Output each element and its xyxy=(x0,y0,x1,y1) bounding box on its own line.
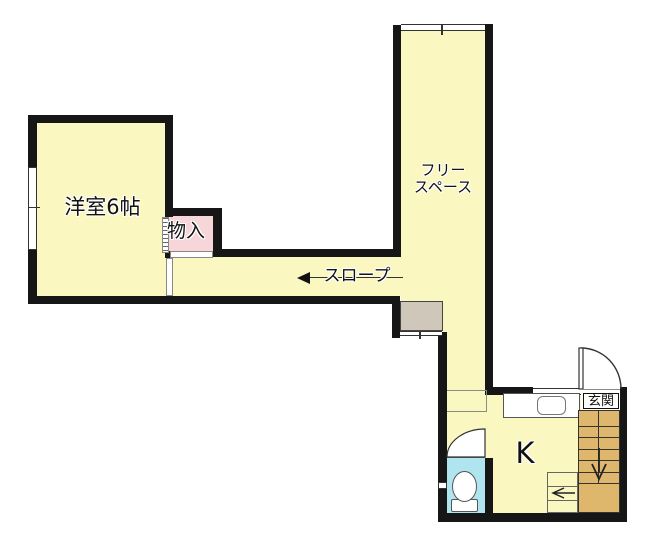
free-space-top-window xyxy=(401,24,485,31)
slope-left-arrow-icon xyxy=(294,269,312,287)
stairs-tread-1 xyxy=(578,426,620,427)
western-window-mullion xyxy=(28,207,40,208)
landing-bottom-window xyxy=(400,331,442,336)
entrance-label: 玄関 xyxy=(583,395,619,410)
floor-plan: 洋室6帖 物入 フリー スペース スロープ 玄関 K xyxy=(0,0,652,540)
corridor-kitchen-step-line-1 xyxy=(447,390,486,391)
wall-freespace-right xyxy=(485,24,493,395)
entrance-door-arc-icon xyxy=(576,343,624,393)
wall-bottom-long xyxy=(28,296,400,304)
wall-western-left-upper xyxy=(28,115,37,167)
wall-landing-left xyxy=(392,304,400,338)
stairs-tread-6 xyxy=(578,483,620,484)
wall-western-top xyxy=(28,115,173,123)
corridor-kitchen-step-line-v xyxy=(486,390,487,412)
kitchen-sink-icon xyxy=(537,396,566,415)
closet-label: 物入 xyxy=(160,221,212,243)
free-space-label-line2: スペース xyxy=(414,178,472,196)
western-room-label: 洋室6帖 xyxy=(40,195,165,219)
entrance-threshold xyxy=(581,389,620,390)
closet-bottom-door xyxy=(170,251,213,258)
steps-left-arrow-icon xyxy=(549,486,577,500)
toilet-door-arc-icon xyxy=(443,424,487,460)
stairs-tread-2 xyxy=(578,437,620,438)
wall-western-right xyxy=(165,115,173,217)
wall-corridor-top xyxy=(213,249,400,257)
landing-window-mullion xyxy=(419,331,421,339)
wall-freespace-left xyxy=(393,25,401,257)
kitchen-label: K xyxy=(506,437,544,470)
western-room-left-window xyxy=(28,167,37,250)
wall-toilet-kitchen xyxy=(485,458,493,513)
free-space-label: フリー スペース xyxy=(401,162,485,197)
western-room-sliding-door xyxy=(166,258,173,296)
toilet-bowl-icon xyxy=(452,471,477,502)
wall-bottom-right xyxy=(438,513,627,522)
lower-step-line-2 xyxy=(547,500,578,501)
slope-landing xyxy=(400,301,443,331)
free-space-window-mullion xyxy=(441,24,443,35)
slope-label: スロープ xyxy=(315,267,399,287)
wall-right xyxy=(620,387,627,522)
corridor-kitchen-step-line-2 xyxy=(447,411,486,412)
stairs-down-arrow-icon xyxy=(591,448,607,482)
free-space-label-line1: フリー xyxy=(420,161,465,179)
toilet-left-window xyxy=(438,482,447,489)
